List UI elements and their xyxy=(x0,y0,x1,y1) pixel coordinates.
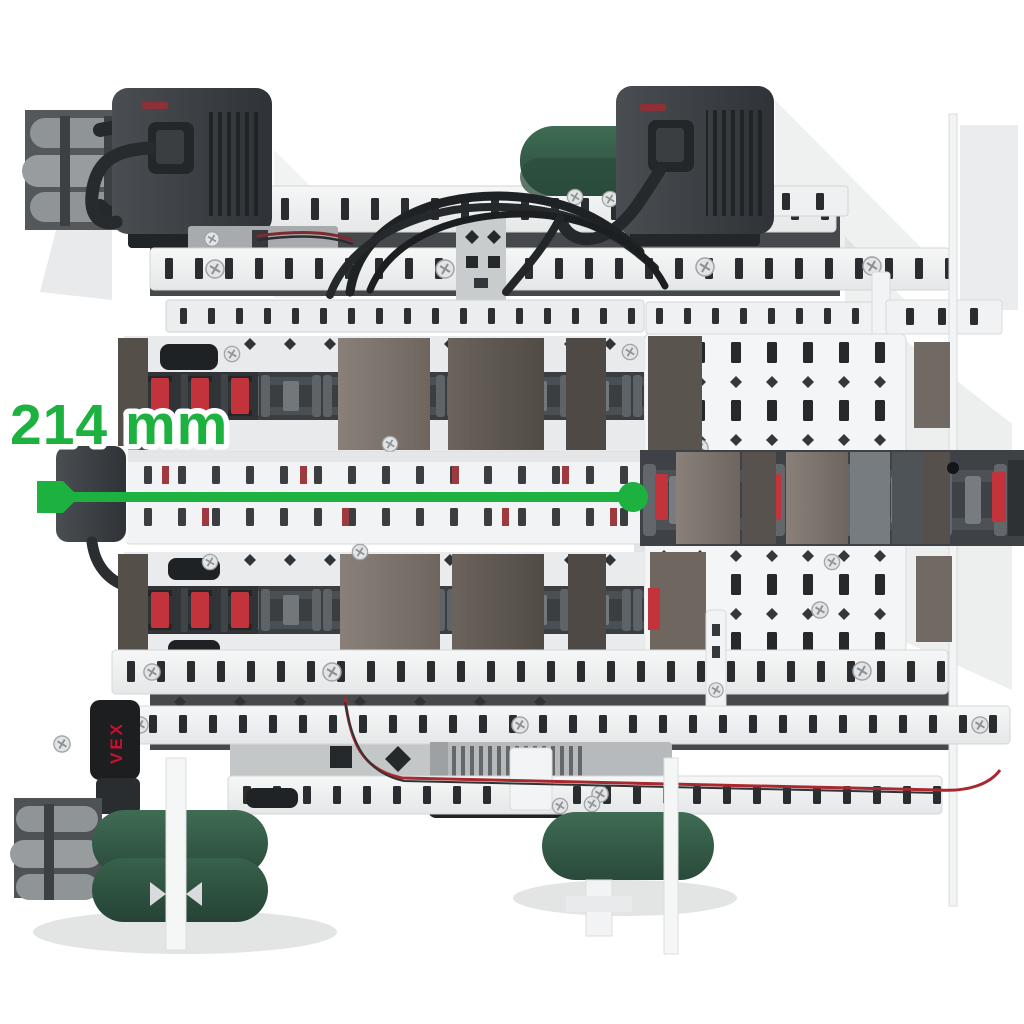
tread-flange xyxy=(914,342,950,428)
shaft-clamp xyxy=(160,344,218,370)
tread-flange xyxy=(118,554,148,666)
measurement-line xyxy=(60,492,633,502)
tread-flange xyxy=(1008,460,1024,536)
motor-brand-mark xyxy=(640,104,666,111)
bottom-long-beam xyxy=(104,706,1010,744)
motor-brand-mark xyxy=(142,102,168,109)
upper-cross-beam xyxy=(150,248,950,290)
measurement-label: 214 mm xyxy=(10,393,228,457)
tread-flange xyxy=(850,452,890,544)
tread-flange xyxy=(340,554,440,666)
tread-flange xyxy=(892,452,924,544)
chain-red-roller xyxy=(648,588,660,630)
tread-flange xyxy=(568,554,606,666)
motor-vent-grille xyxy=(205,112,263,216)
motor-vent-grille xyxy=(706,110,764,216)
robot-top-view-illustration: VEX xyxy=(0,0,1024,1024)
tread-flange xyxy=(648,336,702,452)
tread-chain-red-links xyxy=(140,586,258,634)
tread-flange xyxy=(448,338,544,450)
measurement-end-marker xyxy=(618,482,648,512)
left-drive-motor xyxy=(92,88,272,248)
tread-flange xyxy=(742,452,776,544)
tread-flange xyxy=(566,338,606,450)
tread-flange xyxy=(786,452,848,544)
shaft-collar xyxy=(947,462,959,474)
vex-logo: VEX xyxy=(107,721,126,764)
tread-flange xyxy=(338,338,430,450)
tread-flange xyxy=(924,452,950,544)
tread-flange xyxy=(916,556,952,642)
tread-flange xyxy=(676,452,740,544)
top-right-short-beam xyxy=(768,186,848,216)
tread-flange xyxy=(452,554,544,666)
center-chain-run xyxy=(640,450,1024,546)
right-vertical-link xyxy=(706,610,726,722)
screenshot-root: VEX xyxy=(0,0,1024,1024)
rear-center-axle xyxy=(664,758,678,954)
